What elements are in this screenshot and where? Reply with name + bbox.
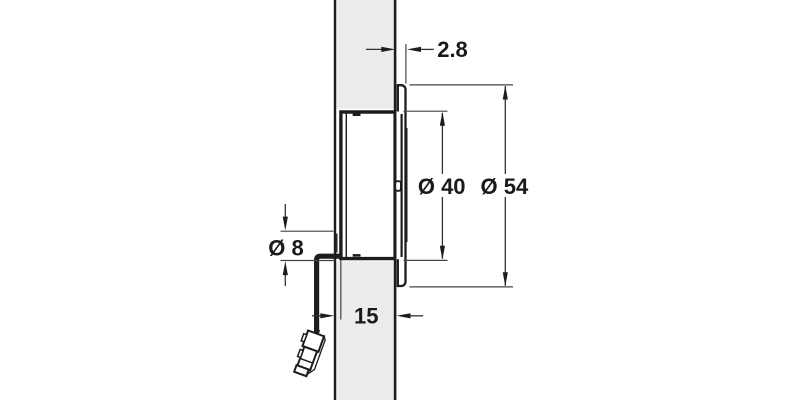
svg-text:15: 15 <box>354 303 378 328</box>
svg-text:Ø 40: Ø 40 <box>418 174 466 199</box>
svg-text:Ø 54: Ø 54 <box>481 174 529 199</box>
svg-text:2.8: 2.8 <box>437 37 468 62</box>
svg-text:Ø 8: Ø 8 <box>268 236 303 261</box>
